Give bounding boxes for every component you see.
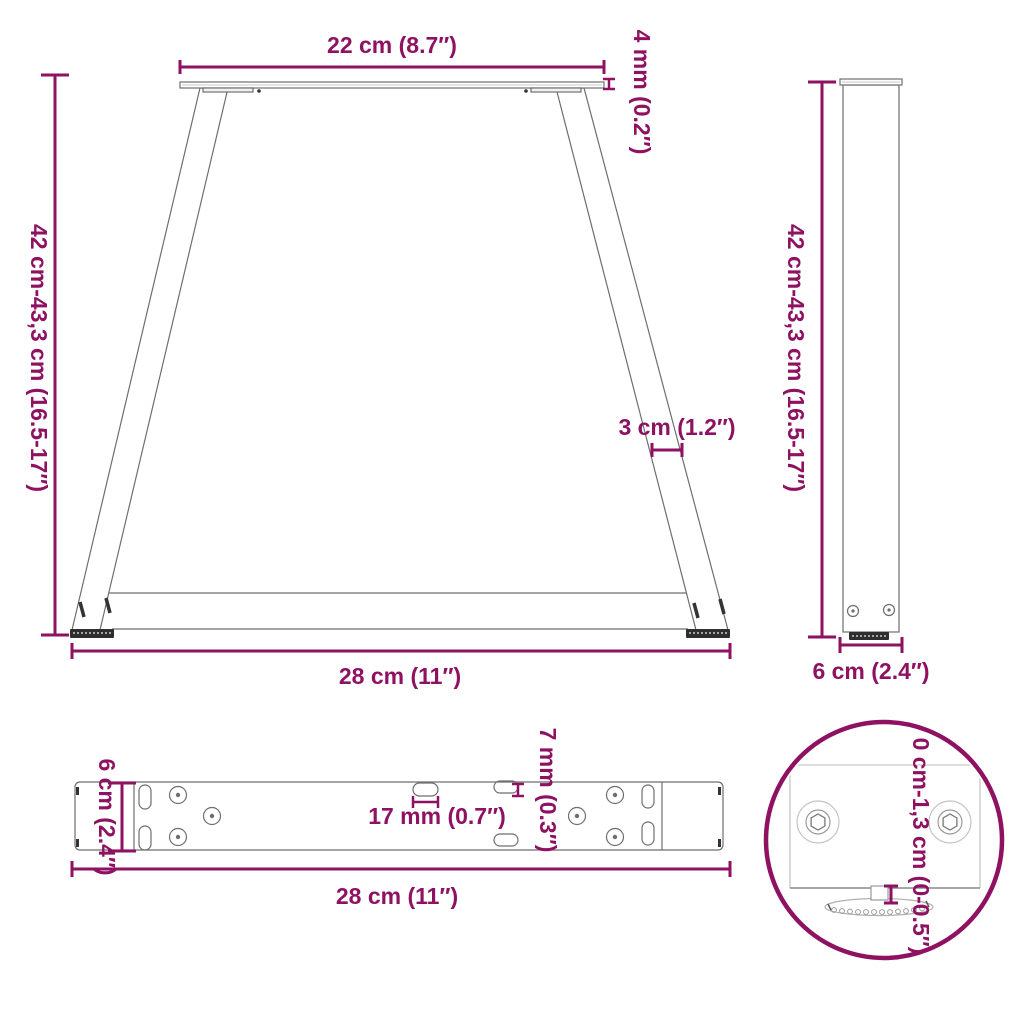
side-screw-dot — [851, 609, 854, 612]
front-plate-thickness-dimension: 4 mm (0.2″) — [603, 30, 655, 155]
right-foot-pad — [686, 629, 730, 638]
front-bottom-width-dimension: 28 cm (11″) — [72, 643, 730, 689]
front-top-width-label: 22 cm (8.7″) — [327, 32, 457, 58]
plate-screw-dot — [257, 89, 261, 93]
side-view: 42 cm-43,3 cm (16.5-17″) 6 cm (2.4″) — [783, 79, 930, 684]
screw-hole-dot — [575, 814, 579, 818]
side-screw-dot — [887, 608, 890, 611]
detail-view: 0 cm-1,3 cm (0-0.5″) — [766, 722, 1002, 958]
front-height-dimension: 42 cm-43,3 cm (16.5-17″) — [26, 75, 69, 635]
front-profile-width-dimension: 3 cm (1.2″) — [618, 414, 735, 457]
front-height-label: 42 cm-43,3 cm (16.5-17″) — [26, 224, 52, 492]
side-depth-dimension: 6 cm (2.4″) — [812, 637, 929, 684]
screw-hole-dot — [176, 835, 180, 839]
slot-length-label: 17 mm (0.7″) — [368, 803, 506, 829]
end-weld-mark — [718, 839, 721, 847]
left-foot-pad — [70, 629, 114, 638]
dimension-diagram: 22 cm (8.7″) 4 mm (0.2″) 42 cm-43,3 cm (… — [0, 0, 1024, 1024]
side-height-dimension: 42 cm-43,3 cm (16.5-17″) — [783, 82, 836, 637]
end-weld-mark — [76, 839, 79, 847]
adjustment-range-label: 0 cm-1,3 cm (0-0.5″) — [908, 738, 934, 955]
top-view-depth-label: 6 cm (2.4″) — [94, 758, 120, 875]
top-view-width-dimension: 28 cm (11″) — [72, 861, 730, 909]
plate-screw-dot — [524, 89, 528, 93]
front-plate-thickness-label: 4 mm (0.2″) — [629, 30, 655, 155]
end-weld-mark — [76, 787, 79, 795]
detail-foot-stem — [871, 886, 888, 900]
detail-circle — [766, 722, 1002, 958]
right-leg — [556, 88, 728, 630]
end-weld-mark — [718, 787, 721, 795]
screw-hole-dot — [613, 835, 617, 839]
left-leg — [72, 88, 228, 630]
front-top-width-dimension: 22 cm (8.7″) — [180, 32, 604, 74]
side-depth-label: 6 cm (2.4″) — [812, 658, 929, 684]
front-bottom-width-label: 28 cm (11″) — [339, 663, 461, 689]
front-view: 22 cm (8.7″) 4 mm (0.2″) 42 cm-43,3 cm (… — [26, 30, 736, 689]
front-profile-width-label: 3 cm (1.2″) — [618, 414, 735, 440]
left-plate-bracket — [203, 88, 253, 92]
right-plate-bracket — [531, 88, 581, 92]
slot-width-label: 7 mm (0.3″) — [535, 728, 561, 853]
top-view: 6 cm (2.4″) 17 mm (0.7″) 7 mm (0.3″) 28 … — [72, 728, 730, 909]
top-view-width-label: 28 cm (11″) — [336, 883, 458, 909]
diagram-canvas: 22 cm (8.7″) 4 mm (0.2″) 42 cm-43,3 cm (… — [0, 0, 1024, 1024]
screw-hole-dot — [210, 814, 214, 818]
left-leg-connector-mark — [106, 598, 110, 613]
screw-hole-dot — [613, 793, 617, 797]
side-column — [843, 85, 899, 632]
screw-hole-dot — [176, 793, 180, 797]
side-height-label: 42 cm-43,3 cm (16.5-17″) — [783, 224, 809, 492]
